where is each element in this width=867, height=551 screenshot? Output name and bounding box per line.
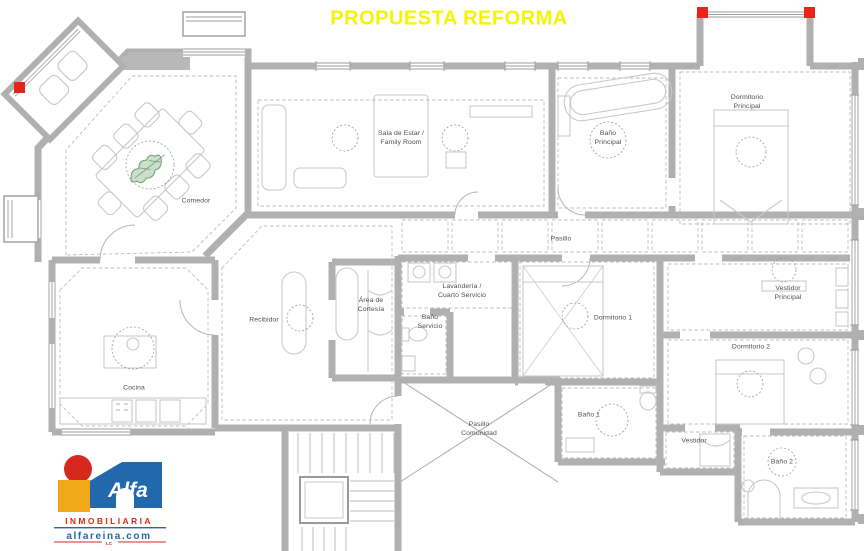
window: [47, 282, 57, 318]
room-outline-bano-1: [562, 388, 656, 458]
dorm-principal-circle: [736, 137, 766, 167]
pasillo-ceiling-grid: [402, 220, 848, 252]
room-outline-bano-2: [744, 436, 846, 518]
room-outline-vestidor-principal: [668, 264, 848, 330]
dining-chair: [96, 190, 123, 217]
window: [620, 61, 650, 71]
comedor-bay-window: [5, 21, 124, 140]
bed-dormitorio-2: [716, 360, 784, 424]
dining-chair: [133, 101, 161, 129]
room-outline-dormitorio-2: [668, 340, 848, 424]
side-table: [446, 152, 466, 168]
burners: [116, 404, 128, 410]
shelf: [836, 290, 848, 308]
room-outline-cocina: [60, 268, 208, 426]
stair-core: [300, 477, 348, 523]
floor-plan-page: PROPUESTA REFORMA Comedor Sala de Estar …: [0, 0, 867, 551]
room-label-dormitorio-1: Dormitorio 1: [594, 315, 632, 324]
dining-chair: [184, 152, 212, 180]
shower-arch: [748, 480, 780, 518]
tv-console: [470, 106, 532, 117]
room-label-bano-1: Baño 1: [578, 412, 600, 421]
dining-chair: [91, 143, 119, 171]
window: [558, 61, 588, 71]
logo-subtitle-text: INMOBILIARIA: [65, 516, 153, 526]
column-marker: [804, 7, 815, 18]
column-marker: [697, 7, 708, 18]
dorm2-circle: [737, 371, 763, 397]
room-outline-recibidor: [222, 226, 392, 420]
armchair-circle: [442, 125, 468, 151]
window: [850, 240, 859, 325]
kitchen-counter: [60, 398, 206, 424]
toilet-tank: [402, 328, 409, 341]
kitchen-island: [104, 336, 156, 368]
stool: [798, 348, 814, 364]
sink: [402, 356, 415, 371]
bed-dormitorio-1: [523, 266, 603, 376]
room-label-area-cortesia: Área de Cortesía: [358, 297, 385, 315]
window: [850, 95, 859, 205]
window: [850, 440, 859, 510]
dining-chair: [142, 194, 170, 222]
alfa-logo: Alfa INMOBILIARIA alfareina.com LC: [50, 452, 170, 548]
balcony-box: [4, 196, 38, 242]
logo-rule-blue: [54, 527, 166, 528]
room-label-pasillo-comunidad: Pasillo Comunidad: [461, 421, 497, 439]
appliance: [112, 400, 132, 422]
window: [410, 61, 444, 71]
stairs: [298, 433, 394, 551]
logo-rule-red: [118, 542, 166, 543]
sofa: [262, 105, 286, 190]
bath-counter: [794, 488, 838, 508]
room-label-vestidor-principal: Vestidor Principal: [775, 285, 802, 303]
room-label-sala-estar: Sala de Estar / Family Room: [378, 130, 424, 148]
room-label-dormitorio-2: Dormitorio 2: [732, 344, 770, 353]
logo-sun-icon: [64, 455, 92, 483]
window: [183, 47, 245, 57]
stool: [810, 368, 826, 384]
balcony-box: [183, 12, 245, 36]
hall-rug: [282, 272, 306, 354]
recibidor-circle: [287, 305, 313, 331]
door-arc: [180, 300, 215, 335]
bed-principal: [714, 110, 788, 224]
appliance: [160, 400, 180, 422]
door-arc: [455, 192, 478, 215]
toilet-bowl: [640, 392, 656, 410]
wall-interior: [205, 66, 855, 522]
kitchen-sink: [127, 338, 139, 350]
room-label-lavanderia: Lavandería / Cuarto Servicio: [438, 283, 486, 301]
dining-chair: [177, 109, 204, 136]
room-outline-sala: [258, 100, 544, 206]
chaise: [294, 168, 346, 188]
room-outline-dormitorio-principal: [680, 72, 850, 224]
window: [62, 427, 130, 437]
armchair-circle: [332, 125, 358, 151]
plan-title: PROPUESTA REFORMA: [330, 8, 567, 31]
logo-rule-red: [54, 542, 102, 543]
room-label-bano-principal: Baño Principal: [595, 130, 622, 148]
basin: [802, 492, 830, 504]
bano1-circle: [596, 404, 628, 436]
room-label-recibidor: Recibidor: [249, 317, 279, 326]
door-arc: [100, 225, 135, 260]
closet-unit: [336, 268, 358, 340]
column-marker: [14, 82, 25, 93]
appliance: [136, 400, 156, 422]
window: [505, 61, 535, 71]
shelf: [836, 312, 848, 326]
room-label-bano-2: Baño 2: [771, 459, 793, 468]
logo-lc-text: LC: [106, 541, 113, 546]
window: [47, 344, 57, 408]
sink: [566, 438, 594, 452]
room-label-pasillo: Pasillo: [551, 236, 572, 245]
room-label-bano-servicio: Baño Servicio: [418, 314, 443, 332]
window: [316, 61, 350, 71]
window: [704, 10, 806, 19]
dryer-drum: [439, 266, 451, 278]
bathtub: [562, 71, 674, 123]
vestidor-circle: [772, 258, 796, 282]
shelf: [836, 268, 848, 286]
plant-icon: [126, 148, 171, 189]
room-label-comedor: Comedor: [182, 198, 211, 207]
room-label-dormitorio-principal: Dormitorio Principal: [731, 94, 763, 112]
closet-rod: [368, 270, 392, 372]
cocina-circle: [112, 327, 154, 369]
window: [850, 350, 859, 425]
washer-drum: [413, 266, 425, 278]
logo-square-icon: [58, 480, 90, 512]
door-arc: [558, 188, 585, 215]
room-label-vestidor: Vestidor: [681, 438, 706, 447]
room-label-cocina: Cocina: [123, 385, 145, 394]
logo-brand-text: Alfa: [107, 479, 148, 502]
